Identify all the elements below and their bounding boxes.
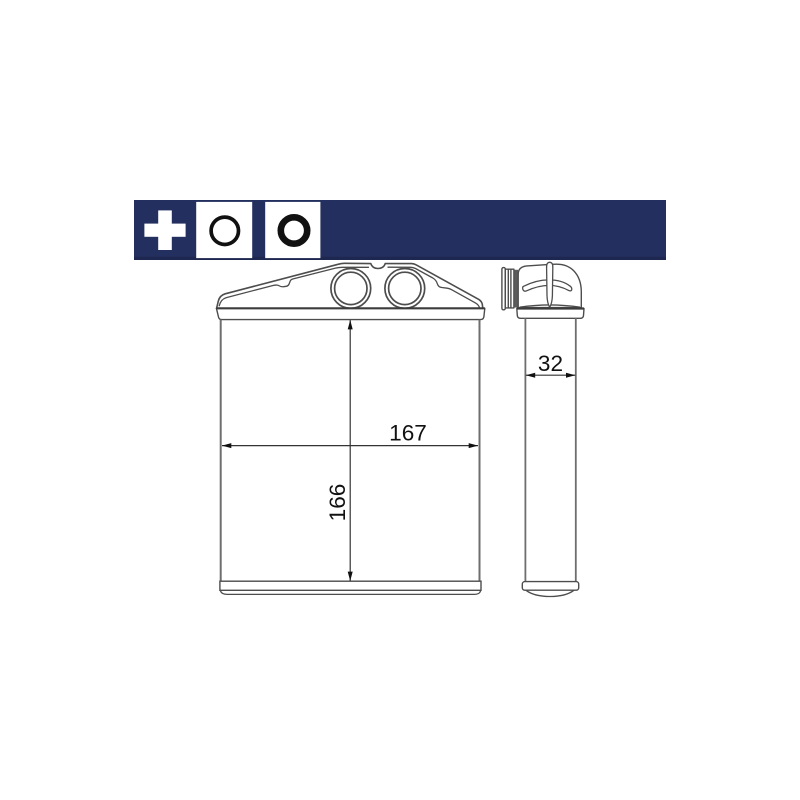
- svg-text:32: 32: [538, 351, 563, 376]
- svg-text:167: 167: [389, 421, 427, 446]
- svg-text:166: 166: [325, 484, 350, 522]
